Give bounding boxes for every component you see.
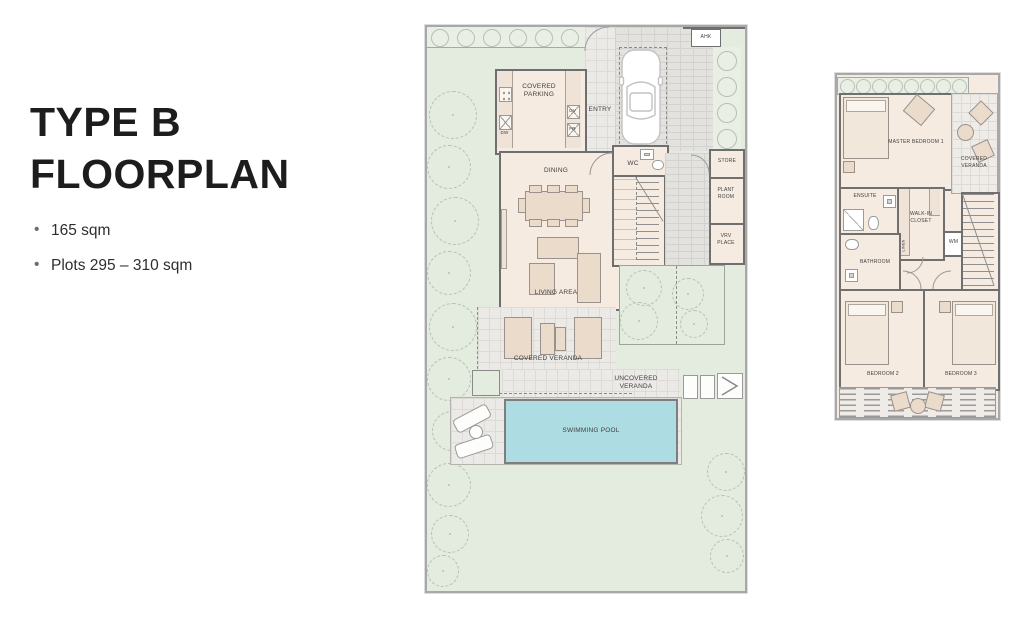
label-linen: LINEN [902,233,907,257]
chair-icon [529,219,542,227]
slide: TYPE B FLOORPLAN 165 sqm Plots 295 – 310… [0,0,1024,621]
staircase-ground [612,175,666,267]
bush-icon [717,103,737,123]
title-line-2: FLOORPLAN [30,148,290,200]
room-label-bedroom-3: BEDROOM 3 [931,371,991,378]
kitchen-counter-left [497,71,513,148]
chevron-right-icon [718,374,742,398]
swimming-pool: SWIMMING POOL [504,399,678,464]
pillow [846,100,886,112]
appliance-label-dw: DW [497,130,512,136]
chair-icon [529,185,542,193]
room-label-uncovered-veranda: UNCOVERED VERANDA [605,375,667,392]
tree-icon [707,453,745,491]
bush-icon [936,79,951,94]
sofa-icon [537,237,579,259]
bush-icon [920,79,935,94]
hedge-strip-top [427,27,585,48]
tree-icon [620,302,658,340]
room-label-store: STORE [711,158,743,165]
chair-icon [582,198,590,213]
chair-icon [565,185,578,193]
wc-room: WC [612,145,669,179]
nightstand-icon [891,301,903,313]
round-table-icon [957,124,974,141]
outdoor-chair-icon [924,391,945,412]
room-label-master-bedroom: MASTER BEDROOM 1 [887,139,945,146]
room-label-wc: WC [622,160,644,168]
bush-icon [888,79,903,94]
bush-icon [717,51,737,71]
tree-icon [427,145,471,189]
room-label-upper-covered-veranda: COVERED VERANDA [953,156,995,169]
outdoor-lounger-icon [504,317,532,359]
room-label-vrv-place: VRV PLACE [713,233,739,246]
tree-icon [427,357,471,401]
ensuite-room: ENSUITE [839,187,901,237]
gate-marker [717,373,743,399]
pillow [955,304,993,316]
bullet-plots: Plots 295 – 310 sqm [34,257,192,275]
boundary-dash [676,266,677,344]
sink-icon [883,195,896,208]
tree-icon [431,197,479,245]
stair-divider [636,177,637,260]
bush-icon [509,29,527,47]
bush-icon [561,29,579,47]
bedroom-3: BEDROOM 3 [923,289,1000,391]
bush-icon [872,79,887,94]
tree-icon [710,539,744,573]
bed-icon [843,97,889,159]
bush-icon [952,79,967,94]
tree-icon [427,251,471,295]
stair-treads-faint [614,177,636,260]
round-table-icon [910,398,926,414]
sink-icon [640,149,654,160]
tree-icon [429,303,477,351]
room-label-bedroom-2: BEDROOM 2 [853,371,913,378]
room-label-living-area: LIVING AREA [521,289,591,297]
shower-icon [843,209,864,231]
bullet-list: 165 sqm Plots 295 – 310 sqm [34,222,192,292]
room-label-plant-room: PLANT ROOM [713,187,739,200]
room-label-ahk: AHK [692,34,720,41]
covered-veranda: COVERED VERANDA [477,307,616,369]
window-strip [501,209,507,269]
bullet-area: 165 sqm [34,222,192,240]
toilet-icon [652,160,664,170]
bush-icon [856,79,871,94]
store-room: STORE [709,149,745,179]
chair-icon [547,219,560,227]
bush-icon [483,29,501,47]
room-label-bathroom: BATHROOM [853,259,897,266]
bush-icon [717,129,737,149]
bedroom-2: BEDROOM 2 [839,289,927,391]
bush-icon [840,79,855,94]
side-table-icon [469,425,483,439]
room-label-swimming-pool: SWIMMING POOL [506,427,676,435]
bed-icon [952,301,996,365]
room-label-covered-veranda: COVERED VERANDA [500,355,596,363]
tree-icon [626,270,662,306]
room-label-covered-parking: COVERED PARKING [515,83,563,100]
entry-walkway [585,27,615,151]
stair-treads [636,177,659,260]
title-line-1: TYPE B [30,96,290,148]
vrv-place-room: VRV PLACE [709,223,745,265]
toilet-icon [845,239,859,250]
chair-icon [565,219,578,227]
walk-in-closet: WALK-IN CLOSET LINEN [897,187,945,261]
upper-covered-veranda: COVERED VERANDA [951,93,998,194]
ahk-room: AHK [691,29,721,47]
outdoor-bench [555,327,566,351]
equipment-pad [683,375,698,399]
sink-icon [845,269,858,282]
tree-icon [680,310,708,338]
equipment-pad [700,375,715,399]
planter-box [472,370,500,396]
tree-icon [429,91,477,139]
room-label-entry: ENTRY [582,106,618,114]
bush-icon [717,77,737,97]
chair-icon [547,185,560,193]
garden-patch [619,265,725,345]
appliance-label-fr: FR [565,126,580,132]
staircase-upper [961,192,1000,292]
kitchen-room: DW OV FR COVERED PARKING [495,69,587,155]
outdoor-lounger-icon [574,317,602,359]
master-bedroom: MASTER BEDROOM 1 [839,93,955,191]
page-title: TYPE B FLOORPLAN [30,96,290,201]
bush-icon [904,79,919,94]
outdoor-chair-icon [890,391,911,412]
pillow [848,304,886,316]
side-path-paving [665,153,709,265]
bush-icon [431,29,449,47]
car-icon [619,47,663,147]
toilet-icon [868,216,879,230]
ground-floor-plan: ENTRY KITCHEN AHK [425,25,747,593]
hob-icon [499,87,512,102]
nightstand-icon [939,301,951,313]
dishwasher-icon [499,115,512,130]
room-label-dining: DINING [531,167,581,175]
tree-icon [427,555,459,587]
tree-icon [427,463,471,507]
tree-icon [431,515,469,553]
upper-floor-plan: MASTER BEDROOM 1 COVERED VERANDA ENSUITE… [835,73,1000,420]
room-label-ensuite: ENSUITE [845,193,885,200]
appliance-label-ov: OV [565,108,580,114]
outdoor-chair-icon [968,100,993,125]
chair-icon [518,198,526,213]
dining-table [525,191,583,221]
balcony [839,387,996,418]
hedge-strip-right [713,47,741,151]
plant-room: PLANT ROOM [709,177,745,225]
bathroom: BATHROOM [839,233,901,293]
armchair-icon [903,94,936,126]
bed-icon [845,301,889,365]
living-dining-room: DINING LIVING AREA [499,151,621,311]
bush-icon [457,29,475,47]
tree-icon [701,495,743,537]
outdoor-table [540,323,555,355]
label-wm: WM [945,239,962,246]
nightstand-icon [843,161,855,173]
room-label-walk-in-closet: WALK-IN CLOSET [907,211,935,224]
bush-icon [535,29,553,47]
